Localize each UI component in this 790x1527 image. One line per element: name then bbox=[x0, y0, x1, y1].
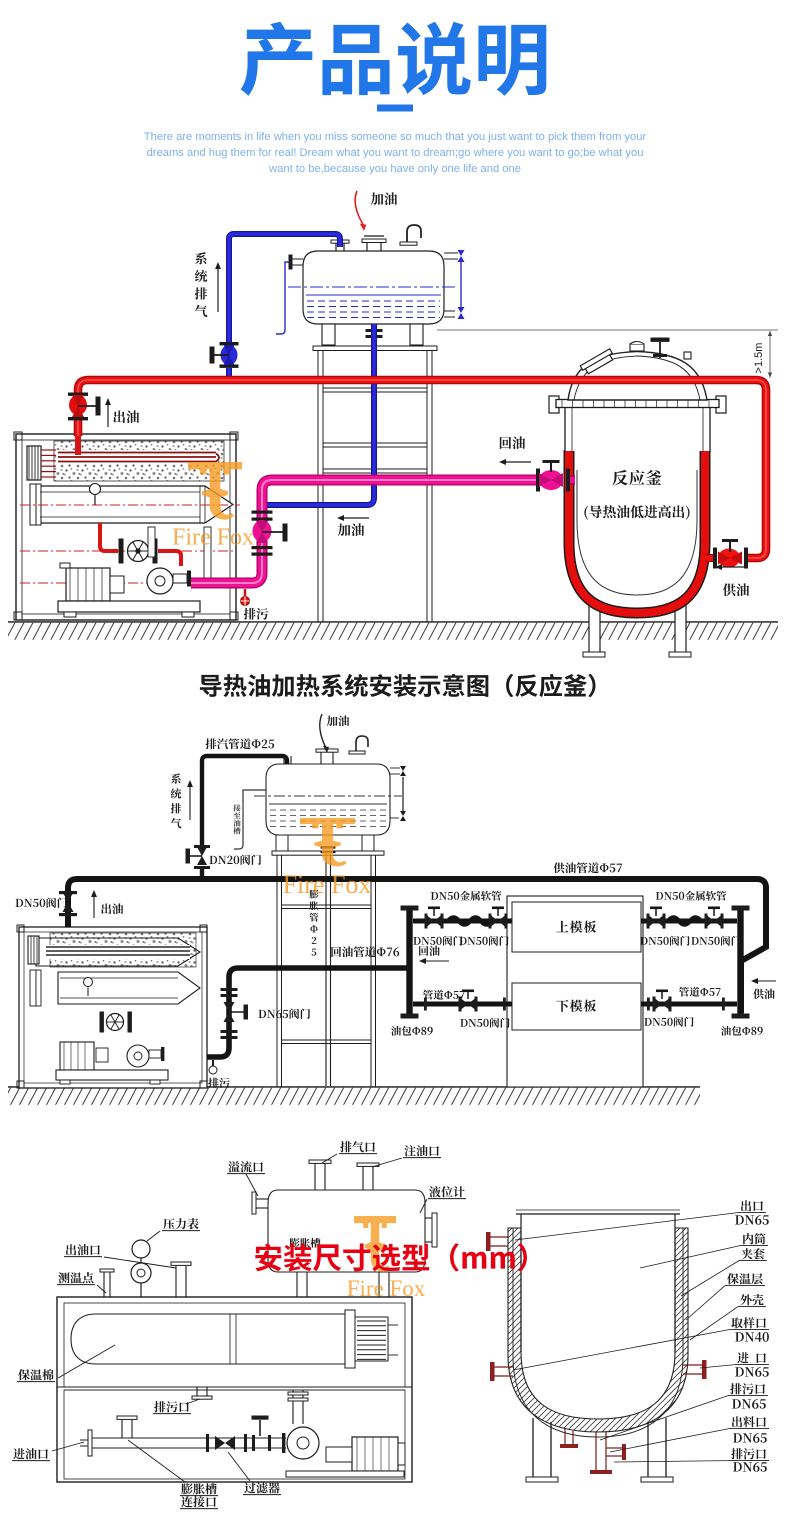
svg-text:Fire Fox: Fire Fox bbox=[283, 870, 372, 899]
svg-text:Fire Fox: Fire Fox bbox=[172, 524, 254, 550]
svg-text:want to be,because you have on: want to be,because you have only one lif… bbox=[268, 163, 521, 175]
svg-text:There are moments in life when: There are moments in life when you miss … bbox=[144, 131, 647, 143]
svg-text:dreams and hug them for real!: dreams and hug them for real! Dream what… bbox=[147, 147, 644, 159]
svg-text:Fire Fox: Fire Fox bbox=[347, 1276, 426, 1301]
svg-text:>1.5m: >1.5m bbox=[753, 343, 765, 374]
